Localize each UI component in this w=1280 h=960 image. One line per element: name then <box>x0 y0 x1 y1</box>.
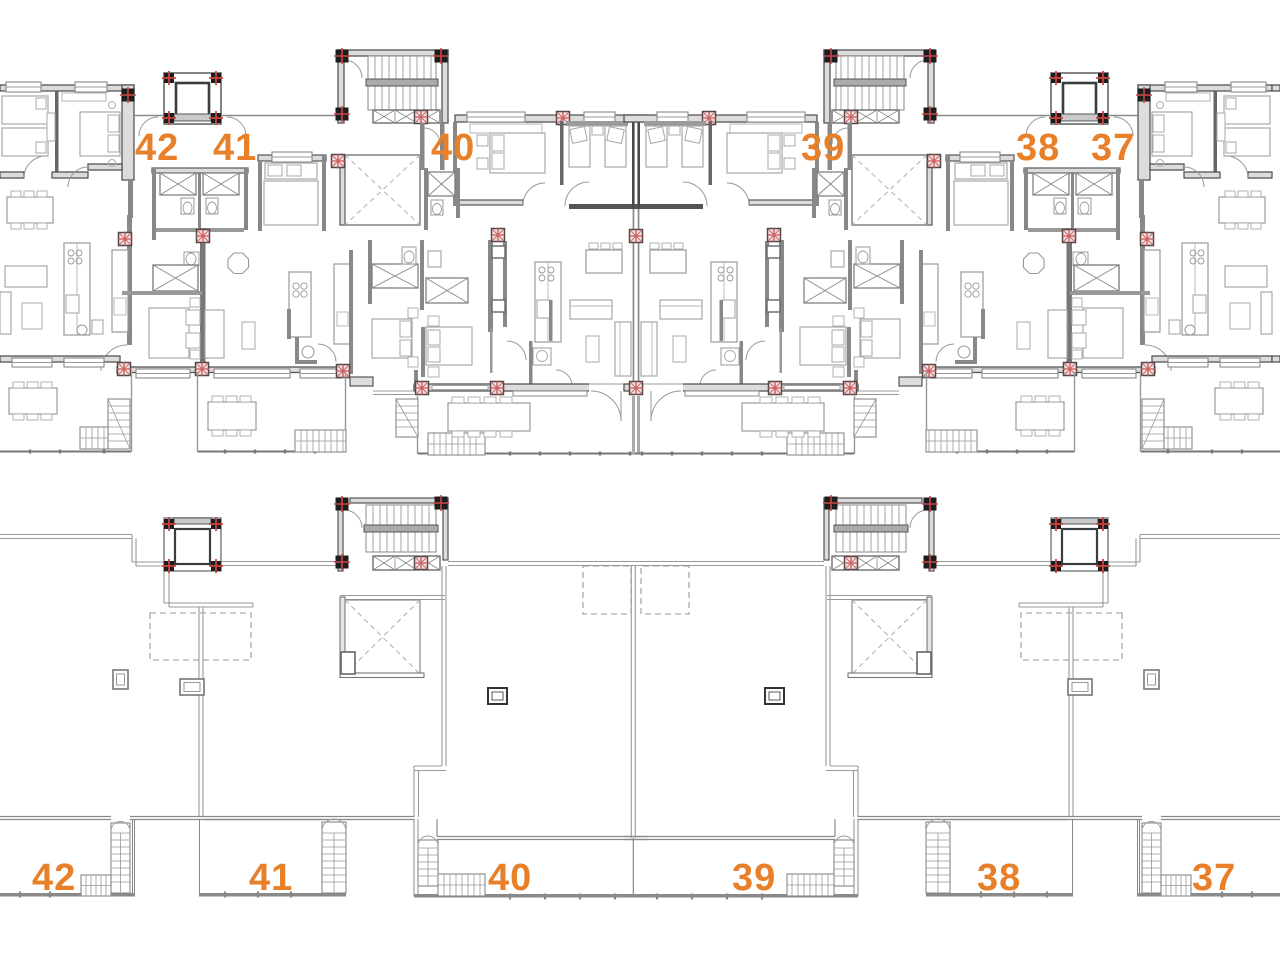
svg-text:42: 42 <box>32 857 76 899</box>
svg-text:39: 39 <box>732 857 776 899</box>
svg-text:40: 40 <box>431 127 475 169</box>
svg-text:37: 37 <box>1091 127 1135 169</box>
svg-text:42: 42 <box>135 127 179 169</box>
svg-text:41: 41 <box>213 127 257 169</box>
svg-text:40: 40 <box>488 857 532 899</box>
svg-text:41: 41 <box>249 857 293 899</box>
svg-text:38: 38 <box>977 857 1021 899</box>
svg-text:37: 37 <box>1192 857 1236 899</box>
svg-text:38: 38 <box>1016 127 1060 169</box>
svg-text:39: 39 <box>801 127 845 169</box>
